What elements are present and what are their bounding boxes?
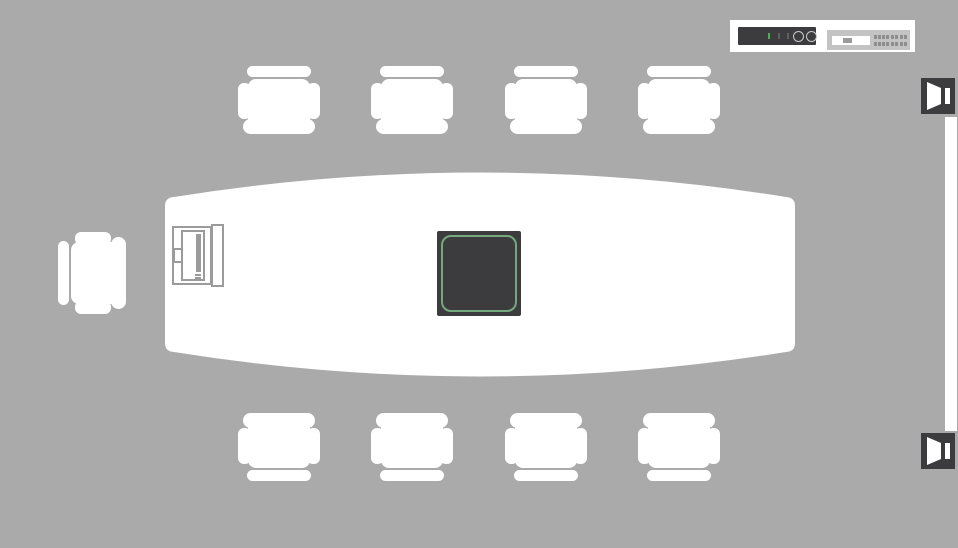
chair-armrest-right xyxy=(574,83,587,119)
switch-port xyxy=(882,35,885,39)
chair-armrest-right xyxy=(307,83,320,119)
wall-display[interactable] xyxy=(945,117,957,431)
connection-panel-screen xyxy=(181,230,205,281)
switch-port xyxy=(895,35,898,39)
chair xyxy=(638,413,720,483)
chair xyxy=(638,64,720,134)
amp-power-led xyxy=(768,33,770,39)
chair-armrest-right xyxy=(440,428,453,464)
chair-armrest-left xyxy=(638,428,651,464)
switch-port xyxy=(900,35,903,39)
chair xyxy=(56,232,126,314)
chair-front-edge xyxy=(376,119,448,134)
connection-panel-mark xyxy=(195,274,201,276)
amplifier-device[interactable] xyxy=(738,27,816,45)
amp-knob xyxy=(806,31,817,42)
switch-port xyxy=(904,35,907,39)
chair-backrest xyxy=(514,66,578,77)
chair-front-edge xyxy=(243,413,315,428)
switch-port xyxy=(895,42,898,46)
chair-backrest xyxy=(380,470,444,481)
switch-port xyxy=(891,42,894,46)
chair-front-edge xyxy=(111,237,126,309)
connection-panel-slot xyxy=(196,234,201,272)
speaker-icon[interactable] xyxy=(921,433,955,469)
chair-backrest xyxy=(647,470,711,481)
chair-armrest-left xyxy=(238,83,251,119)
amp-indicator xyxy=(787,33,789,39)
chair-armrest-right xyxy=(707,428,720,464)
chair xyxy=(371,413,453,483)
chair-backrest xyxy=(247,66,311,77)
chair-armrest-right xyxy=(307,428,320,464)
switch-port xyxy=(886,35,889,39)
chair-front-edge xyxy=(643,413,715,428)
chair-backrest xyxy=(514,470,578,481)
equipment-rack-panel xyxy=(730,20,915,52)
chair xyxy=(238,413,320,483)
chair-backrest xyxy=(58,241,69,305)
switch-label-strip xyxy=(832,36,870,45)
connection-panel[interactable] xyxy=(172,224,224,287)
chair xyxy=(505,413,587,483)
table-hub-screen-outline xyxy=(441,235,517,312)
chair-armrest-right xyxy=(75,232,111,245)
chair-armrest-left xyxy=(505,83,518,119)
chair-front-edge xyxy=(376,413,448,428)
connection-panel-side-tray xyxy=(211,224,224,287)
connection-panel-mark xyxy=(195,277,201,279)
network-switch-device[interactable] xyxy=(827,30,910,50)
switch-label-chip xyxy=(843,38,852,43)
switch-port xyxy=(900,42,903,46)
chair-front-edge xyxy=(243,119,315,134)
chair xyxy=(238,64,320,134)
chair-backrest xyxy=(247,470,311,481)
room-floorplan xyxy=(0,0,958,548)
switch-port xyxy=(878,35,881,39)
chair xyxy=(505,64,587,134)
chair-armrest-left xyxy=(371,83,384,119)
switch-port-grid xyxy=(874,35,907,46)
chair-armrest-left xyxy=(505,428,518,464)
chair-armrest-left xyxy=(238,428,251,464)
chair-armrest-right xyxy=(574,428,587,464)
table-hub-device[interactable] xyxy=(437,231,521,316)
chair-backrest xyxy=(380,66,444,77)
speaker-icon[interactable] xyxy=(921,78,955,114)
switch-port xyxy=(886,42,889,46)
switch-port xyxy=(882,42,885,46)
chair-front-edge xyxy=(643,119,715,134)
chair xyxy=(371,64,453,134)
chair-armrest-left xyxy=(638,83,651,119)
chair-armrest-left xyxy=(371,428,384,464)
chair-front-edge xyxy=(510,119,582,134)
switch-port xyxy=(891,35,894,39)
chair-armrest-left xyxy=(75,301,111,314)
switch-port xyxy=(904,42,907,46)
switch-port xyxy=(874,42,877,46)
amp-indicator xyxy=(778,33,780,39)
chair-armrest-right xyxy=(440,83,453,119)
switch-port xyxy=(878,42,881,46)
chair-front-edge xyxy=(510,413,582,428)
chair-armrest-right xyxy=(707,83,720,119)
amp-knob xyxy=(793,31,804,42)
chair-backrest xyxy=(647,66,711,77)
switch-port xyxy=(874,35,877,39)
